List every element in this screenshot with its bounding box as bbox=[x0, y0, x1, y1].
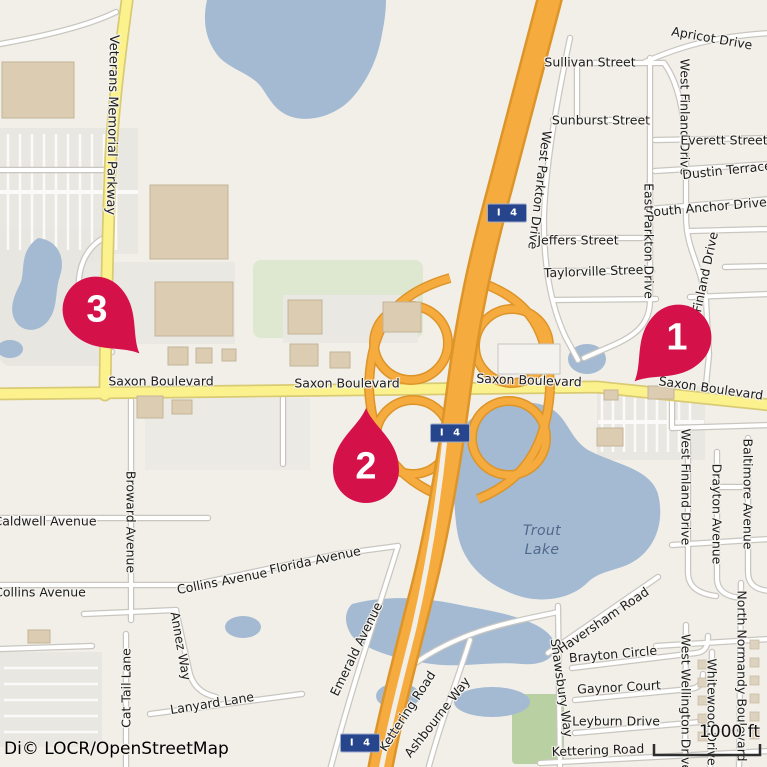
i4-shield: I 4 bbox=[487, 204, 527, 223]
i4-shield: I 4 bbox=[340, 734, 380, 753]
pin-number: 3 bbox=[86, 289, 107, 332]
pin-number: 2 bbox=[355, 446, 376, 489]
scale-bar-line bbox=[652, 743, 762, 757]
map-canvas[interactable]: Sullivan Street Apricot Drive Sunburst S… bbox=[0, 0, 767, 767]
scale-bar: 1000 ft bbox=[652, 722, 762, 761]
scale-bar-label: 1000 ft bbox=[652, 722, 760, 742]
trout-lake-label: Trout Lake bbox=[523, 522, 561, 560]
map-attribution: Di© LOCR/OpenStreetMap bbox=[4, 739, 229, 759]
trout-lake-label-line2: Lake bbox=[523, 541, 561, 560]
trout-lake-label-line1: Trout bbox=[523, 522, 561, 541]
i4-shield: I 4 bbox=[430, 424, 470, 443]
pin-number: 1 bbox=[666, 317, 687, 360]
